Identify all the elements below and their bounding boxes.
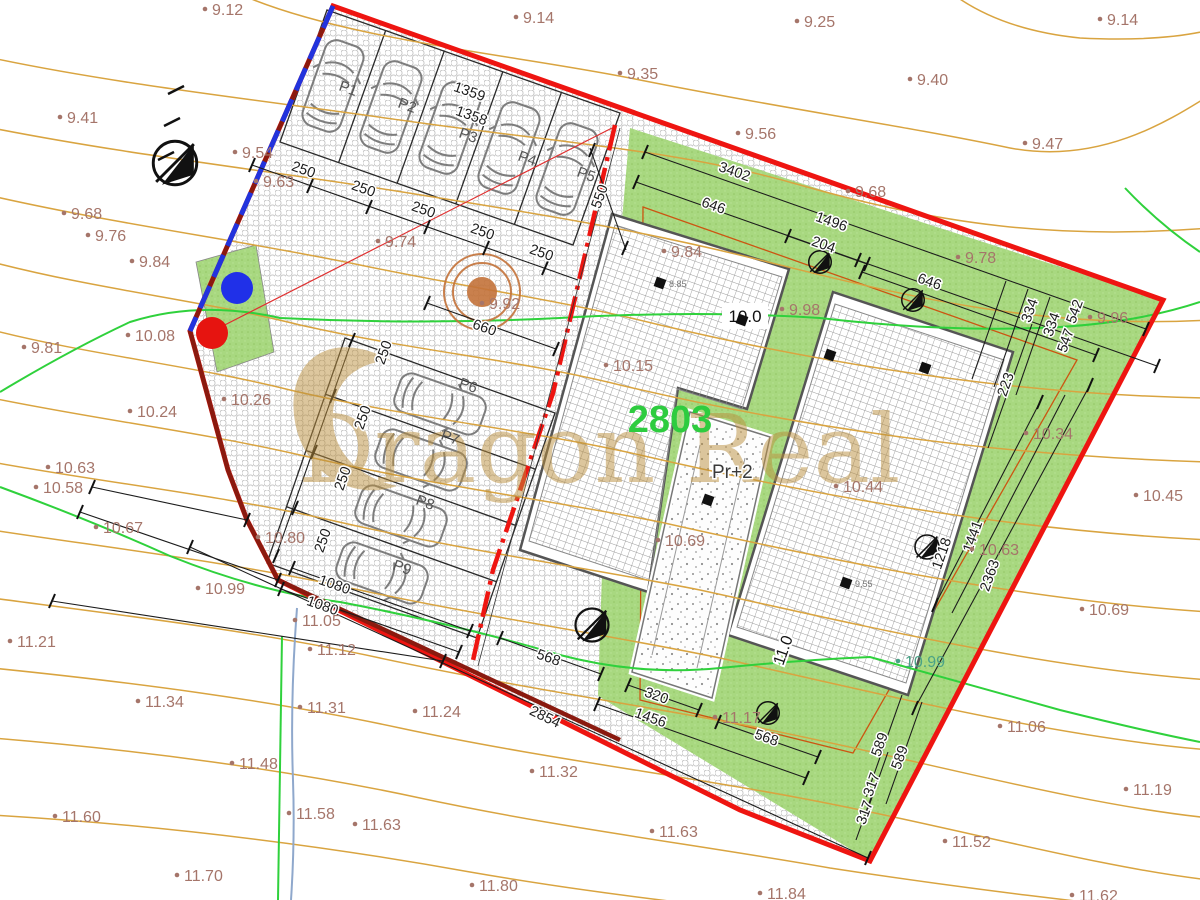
elevation-dot — [196, 586, 201, 591]
elevation-dot — [298, 705, 303, 710]
stream-line — [291, 608, 297, 900]
elevation-label: 9.41 — [67, 110, 98, 127]
elevation-label: 9.54 — [242, 145, 273, 162]
elevation-label: 10.80 — [265, 530, 305, 547]
elevation-label: 9.63 — [263, 174, 294, 191]
elevation-label: 11.60 — [62, 809, 101, 826]
elevation-label: 10.63 — [55, 460, 95, 477]
elevation-dot — [230, 761, 235, 766]
survey-point-label: 9.55 — [855, 579, 873, 589]
elevation-label: 9.25 — [804, 14, 835, 31]
elevation-label: 11.32 — [539, 764, 578, 781]
site-plan-canvas: Dragon Real 2803 Pr+2 10.0 11.0 8.859.55… — [0, 0, 1200, 900]
elevation-label: 10.67 — [103, 520, 143, 537]
elevation-label: 9.14 — [1107, 12, 1138, 29]
elevation-dot — [8, 639, 13, 644]
elevation-label: 11.70 — [184, 868, 223, 885]
elevation-label: 10.69 — [665, 533, 705, 550]
north-arrow-icon — [153, 141, 197, 185]
elevation-label: 10.08 — [135, 328, 175, 345]
elevation-dot — [130, 259, 135, 264]
elevation-dot — [662, 249, 667, 254]
elevation-label: 9.76 — [95, 228, 126, 245]
elevation-dot — [175, 873, 180, 878]
elevation-dot — [530, 769, 535, 774]
elevation-dot — [293, 618, 298, 623]
elevation-dot — [413, 709, 418, 714]
elevation-label: 11.63 — [659, 824, 698, 841]
elevation-dot — [136, 699, 141, 704]
elevation-dot — [956, 255, 961, 260]
elevation-label: 10.44 — [843, 479, 883, 496]
elevation-label: 9.68 — [71, 206, 102, 223]
elevation-dot — [480, 301, 485, 306]
elevation-label: 9.78 — [965, 250, 996, 267]
elevation-label: 9.47 — [1032, 136, 1063, 153]
elevation-dot — [46, 465, 51, 470]
elevation-dot — [287, 811, 292, 816]
elevation-dot — [128, 409, 133, 414]
elevation-label: 11.31 — [307, 700, 346, 717]
elevation-label: 9.74 — [385, 234, 416, 251]
elevation-dot — [713, 715, 718, 720]
elevation-label: 9.35 — [627, 66, 658, 83]
elevation-dot — [618, 71, 623, 76]
elevation-label: 11.21 — [17, 634, 56, 651]
elevation-dot — [1098, 17, 1103, 22]
elevation-dot — [1088, 315, 1093, 320]
elevation-dot — [1134, 493, 1139, 498]
elevation-label: 10.34 — [1033, 426, 1073, 443]
parcel-number: 2803 — [628, 399, 713, 441]
elevation-dot — [353, 822, 358, 827]
elevation-label: 9.84 — [139, 254, 170, 271]
elevation-dot — [256, 535, 261, 540]
elevation-label: 10.69 — [1089, 602, 1129, 619]
elevation-label: 9.14 — [523, 10, 554, 27]
elevation-dot — [1024, 431, 1029, 436]
elevation-dot — [943, 839, 948, 844]
elevation-label: 9.68 — [855, 184, 886, 201]
elevation-dot — [126, 333, 131, 338]
elevation-dot — [22, 345, 27, 350]
elevation-dot — [736, 131, 741, 136]
elevation-label: 11.06 — [1007, 719, 1046, 736]
elevation-label: 11.80 — [479, 878, 518, 895]
elevation-label: 9.40 — [917, 72, 948, 89]
elevation-dot — [1124, 787, 1129, 792]
dim-tick — [1154, 359, 1160, 373]
elevation-label: 11.63 — [362, 817, 401, 834]
elevation-dot — [94, 525, 99, 530]
site-plan-drawing: Dragon Real 2803 Pr+2 10.0 11.0 8.859.55… — [0, 0, 1200, 900]
elevation-dot — [514, 15, 519, 20]
elevation-label: 9.56 — [745, 126, 776, 143]
elevation-dot — [1023, 141, 1028, 146]
elevation-dot — [998, 724, 1003, 729]
elevation-dot — [34, 485, 39, 490]
elevation-dot — [1070, 893, 1075, 898]
elevation-label: 9.98 — [789, 302, 820, 319]
elevation-label: 11.58 — [296, 806, 335, 823]
elevation-label: 11.17 — [722, 710, 761, 727]
elevation-label: 10.99 — [205, 581, 245, 598]
elevation-dot — [53, 814, 58, 819]
elevation-dot — [650, 829, 655, 834]
elevation-label: 11.24 — [422, 704, 461, 721]
elevation-label: 11.19 — [1133, 782, 1172, 799]
elevation-dot — [780, 307, 785, 312]
elevation-dot — [846, 189, 851, 194]
watermark-text: Dragon Real — [298, 395, 900, 505]
elevation-label: 11.52 — [952, 834, 991, 851]
elevation-dot — [795, 19, 800, 24]
elevation-dot — [470, 883, 475, 888]
elevation-label: 10.99 — [905, 654, 945, 671]
elevation-dot — [896, 659, 901, 664]
elevation-dot — [222, 397, 227, 402]
elevation-dot — [758, 891, 763, 896]
elevation-dot — [254, 179, 259, 184]
elevation-label: 11.12 — [317, 642, 356, 659]
elevation-dot — [233, 150, 238, 155]
red-point-marker — [196, 317, 228, 349]
elevation-label: 9.92 — [489, 296, 520, 313]
building-label: Pr+2 — [712, 462, 753, 483]
elevation-label: 11.62 — [1079, 888, 1118, 900]
elevation-dot — [58, 115, 63, 120]
elevation-dot — [970, 547, 975, 552]
elevation-dot — [656, 538, 661, 543]
elevation-dot — [376, 239, 381, 244]
elevation-dot — [1080, 607, 1085, 612]
elevation-dot — [203, 7, 208, 12]
elevation-label: 11.84 — [767, 886, 806, 900]
elevation-label: 9.84 — [671, 244, 702, 261]
elevation-label: 10.63 — [979, 542, 1019, 559]
dim-tick — [187, 540, 193, 554]
elevation-label: 10.24 — [137, 404, 177, 421]
elevation-dot — [604, 363, 609, 368]
elevation-dot — [62, 211, 67, 216]
elevation-label: 9.81 — [31, 340, 62, 357]
elevation-label: 10.58 — [43, 480, 83, 497]
elevation-dot — [308, 647, 313, 652]
elevation-label: 10.26 — [231, 392, 271, 409]
elevation-label: 11.48 — [239, 756, 278, 773]
elevation-label: 10.45 — [1143, 488, 1183, 505]
elevation-dot — [834, 484, 839, 489]
elevation-label: 10.15 — [613, 358, 653, 375]
elevation-label: 11.34 — [145, 694, 184, 711]
elevation-dot — [908, 77, 913, 82]
survey-point-label: 8.85 — [669, 279, 687, 289]
elevation-dot — [86, 233, 91, 238]
elevation-label: 11.05 — [302, 613, 341, 630]
elevation-label: 9.96 — [1097, 310, 1128, 327]
elevation-label: 9.12 — [212, 2, 243, 19]
blue-point-marker — [221, 272, 253, 304]
